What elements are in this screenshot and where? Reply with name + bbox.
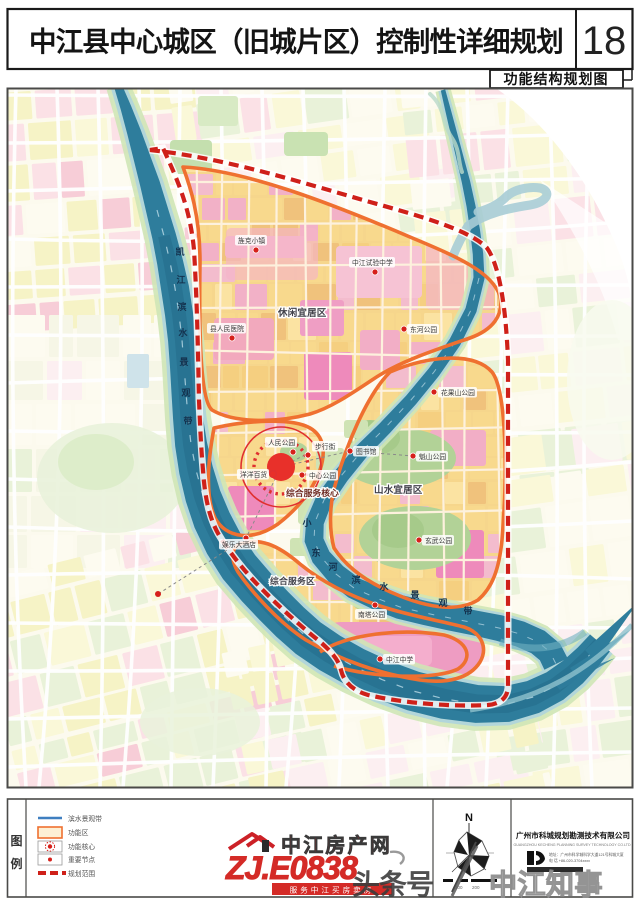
svg-text:人民公园: 人民公园: [268, 439, 295, 447]
svg-text:ZJ.E0838: ZJ.E0838: [225, 850, 358, 886]
svg-text:电 话 +86-020-3704xxxx: 电 话 +86-020-3704xxxx: [549, 858, 590, 863]
svg-text:18: 18: [582, 19, 627, 63]
svg-text:规划范围: 规划范围: [68, 869, 95, 878]
svg-text:旌克小镇: 旌克小镇: [238, 236, 265, 245]
svg-text:重要节点: 重要节点: [68, 856, 95, 864]
svg-text:东: 东: [311, 547, 320, 558]
svg-text:凯: 凯: [175, 246, 184, 257]
svg-text:例: 例: [10, 856, 22, 871]
svg-text:水: 水: [379, 581, 389, 592]
svg-text:中心公园: 中心公园: [309, 471, 336, 480]
svg-text:功能区: 功能区: [68, 828, 89, 837]
svg-text:图: 图: [10, 834, 22, 848]
svg-text:花果山公园: 花果山公园: [441, 388, 475, 397]
svg-text:功能结构规划图: 功能结构规划图: [504, 71, 609, 87]
svg-text:观: 观: [438, 598, 447, 608]
svg-text:头条号: 头条号: [352, 869, 433, 900]
svg-text:功能核心: 功能核心: [68, 842, 95, 851]
svg-text:东河公园: 东河公园: [410, 325, 437, 334]
svg-text:N: N: [465, 812, 473, 824]
svg-text:景: 景: [179, 357, 188, 367]
svg-text:综合服务区: 综合服务区: [270, 575, 315, 586]
svg-text:GUANGZHOU KECHENG PLANNING SUR: GUANGZHOU KECHENG PLANNING SURVEY TECHNO…: [513, 843, 630, 847]
svg-text:步行街: 步行街: [315, 442, 336, 451]
svg-text:综合服务核心: 综合服务核心: [286, 487, 339, 498]
svg-text:洋洋百货: 洋洋百货: [240, 470, 267, 479]
svg-text:南塔公园: 南塔公园: [358, 610, 385, 619]
svg-text:带: 带: [183, 415, 192, 426]
svg-text:地址：广州市科学城科学大道121号科城大厦: 地址：广州市科学城科学大道121号科城大厦: [549, 852, 624, 857]
svg-text:中江县中心城区（旧城片区）控制性详细规划: 中江县中心城区（旧城片区）控制性详细规划: [29, 26, 563, 57]
svg-text:观: 观: [181, 388, 190, 398]
svg-text:山水宜居区: 山水宜居区: [374, 484, 423, 496]
svg-text:小: 小: [301, 517, 311, 528]
svg-text:滨水景观带: 滨水景观带: [68, 814, 102, 823]
svg-text:玄武公园: 玄武公园: [425, 536, 452, 545]
svg-text:图书馆: 图书馆: [356, 447, 377, 456]
svg-text:中江中学: 中江中学: [386, 655, 413, 664]
svg-text:休闲宜居区: 休闲宜居区: [277, 307, 327, 319]
svg-text:中江试验中学: 中江试验中学: [352, 258, 393, 267]
svg-text:滨: 滨: [351, 574, 360, 585]
svg-text:魁山公园: 魁山公园: [419, 452, 446, 461]
svg-text:滨: 滨: [177, 301, 186, 312]
svg-text:水: 水: [178, 327, 188, 338]
svg-text:广州市科城规划勘测技术有限公司: 广州市科城规划勘测技术有限公司: [516, 830, 630, 840]
svg-text:娱乐大酒店: 娱乐大酒店: [222, 540, 256, 549]
svg-text:中江知事: 中江知事: [489, 868, 603, 900]
svg-text:200: 200: [472, 885, 480, 890]
svg-text:带: 带: [463, 605, 472, 616]
svg-text:景: 景: [410, 590, 419, 600]
svg-text:河: 河: [328, 561, 337, 572]
svg-text:江: 江: [176, 274, 185, 285]
svg-text:县人民医院: 县人民医院: [210, 324, 244, 333]
